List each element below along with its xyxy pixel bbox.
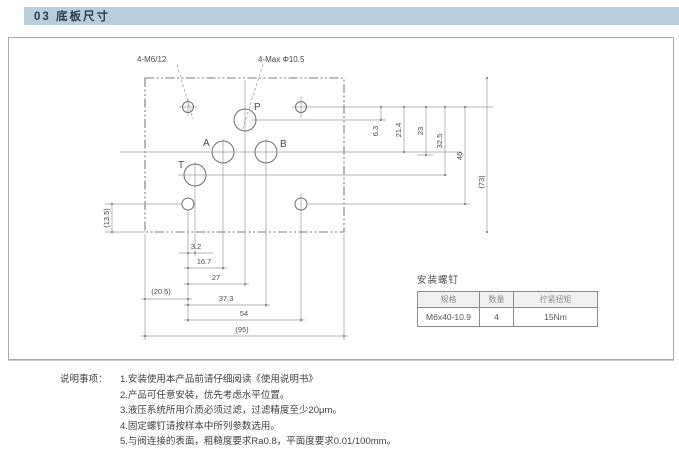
- notes-section: 说明事项： 1.安装使用本产品前请仔细阅读《使用说明书》 2.产品可任意安装，优…: [60, 372, 640, 450]
- screw-col-torque: 拧紧扭矩: [514, 292, 598, 308]
- notes-list: 1.安装使用本产品前请仔细阅读《使用说明书》 2.产品可任意安装，优先考虑水平位…: [120, 372, 396, 450]
- screw-table-title: 安装螺钉: [417, 272, 597, 286]
- screw-spec-value: M6x40-10.9: [418, 308, 480, 327]
- note-item-2: 2.产品可任意安装，优先考虑水平位置。: [120, 388, 396, 404]
- dim-16-7: 16.7: [197, 257, 212, 266]
- dim-73: (73): [477, 175, 486, 189]
- max-port-note: 4-Max Φ10.5: [258, 55, 305, 64]
- screw-table: 规格 数量 拧紧扭矩 M6x40-10.9 4 15Nm: [417, 291, 598, 327]
- screw-torque-value: 15Nm: [514, 308, 598, 327]
- dim-21-4: 21.4: [394, 123, 403, 138]
- plate-outline: [145, 78, 344, 232]
- port-label-a: A: [203, 138, 210, 149]
- note-item-1: 1.安装使用本产品前请仔细阅读《使用说明书》: [120, 372, 396, 388]
- screw-table-header-row: 规格 数量 拧紧扭矩: [418, 292, 598, 308]
- mount-hole-bottom-left: [182, 198, 194, 210]
- note-item-5: 5.与阀连接的表面，粗糙度要求Ra0.8，平面度要求0.01/100mm。: [120, 434, 396, 450]
- screw-col-spec: 规格: [418, 292, 480, 308]
- port-label-b: B: [280, 139, 287, 150]
- dim-32-5: 32.5: [435, 134, 444, 149]
- dim-95: (95): [235, 325, 249, 334]
- dim-54: 54: [240, 309, 248, 318]
- screw-qty-value: 4: [480, 308, 514, 327]
- dim-46: 46: [455, 152, 464, 160]
- dim-13-5: (13.5): [102, 208, 111, 228]
- thread-holes-note: 4-M6/12: [137, 55, 167, 64]
- dim-3-2: 3.2: [191, 242, 201, 251]
- dim-6-3: 6.3: [371, 126, 380, 136]
- dim-23: 23: [416, 127, 425, 135]
- port-label-t: T: [178, 160, 184, 171]
- note-item-4: 4.固定螺钉请按样本中所列参数选用。: [120, 419, 396, 435]
- catalog-page: { "page": { "header": { "title": "03 底板尺…: [0, 0, 679, 457]
- note-item-3: 3.液压系统所用介质必须过滤，过滤精度至少20μm。: [120, 403, 396, 419]
- leader-thread-note: [177, 65, 193, 119]
- port-holes: [182, 102, 307, 211]
- mounting-screw-section: 安装螺钉 规格 数量 拧紧扭矩 M6x40-10.9 4 15Nm: [417, 272, 597, 327]
- horizontal-dimensions: 3.2 16.7 27 (20.5) 37.3 54 (95): [141, 242, 348, 337]
- notes-label: 说明事项：: [60, 372, 120, 450]
- dim-27: 27: [212, 273, 220, 282]
- screw-table-data-row: M6x40-10.9 4 15Nm: [418, 308, 598, 327]
- dim-37-3: 37.3: [219, 294, 234, 303]
- screw-col-qty: 数量: [480, 292, 514, 308]
- dim-20-5: (20.5): [151, 287, 171, 296]
- port-label-p: P: [254, 102, 261, 113]
